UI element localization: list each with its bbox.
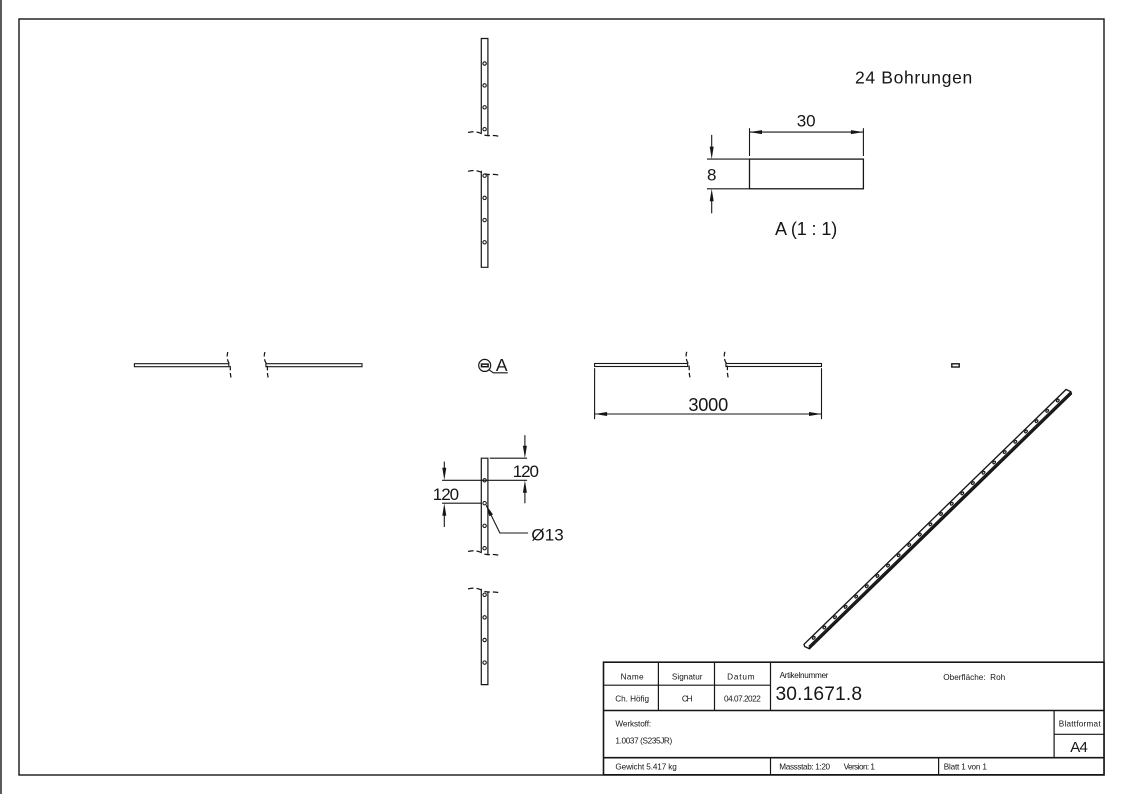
svg-text:A (1 : 1): A (1 : 1)	[775, 219, 837, 239]
svg-text:A4: A4	[1070, 739, 1088, 756]
svg-text:CH: CH	[682, 694, 693, 703]
svg-text:Gewicht 5.417 kg: Gewicht 5.417 kg	[615, 763, 677, 772]
svg-text:8: 8	[707, 165, 716, 184]
svg-text:Werkstoff:: Werkstoff:	[615, 720, 651, 729]
svg-text:Datum: Datum	[727, 673, 755, 682]
svg-text:3000: 3000	[688, 395, 728, 415]
svg-text:Ch. Höfig: Ch. Höfig	[615, 695, 649, 704]
svg-text:Blattformat: Blattformat	[1059, 720, 1102, 729]
svg-text:Blatt 1 von 1: Blatt 1 von 1	[944, 763, 988, 772]
svg-text:30.1671.8: 30.1671.8	[776, 684, 863, 705]
svg-text:04.07.2022: 04.07.2022	[724, 694, 761, 703]
svg-text:Name: Name	[621, 673, 644, 682]
svg-text:Massstab: 1:20: Massstab: 1:20	[779, 763, 830, 772]
svg-text:A: A	[496, 355, 508, 375]
svg-text:Signatur: Signatur	[672, 673, 703, 682]
svg-text:Version: 1: Version: 1	[844, 763, 876, 772]
svg-text:30: 30	[797, 111, 816, 130]
svg-text:Oberfläche: Roh: Oberfläche: Roh	[943, 673, 1005, 682]
svg-text:Artikelnummer: Artikelnummer	[780, 671, 829, 680]
svg-text:Ø13: Ø13	[531, 526, 563, 545]
svg-text:120: 120	[513, 462, 539, 481]
svg-text:120: 120	[433, 485, 459, 504]
svg-text:1.0037 (S235JR): 1.0037 (S235JR)	[615, 736, 672, 745]
svg-text:24 Bohrungen: 24 Bohrungen	[855, 68, 972, 88]
